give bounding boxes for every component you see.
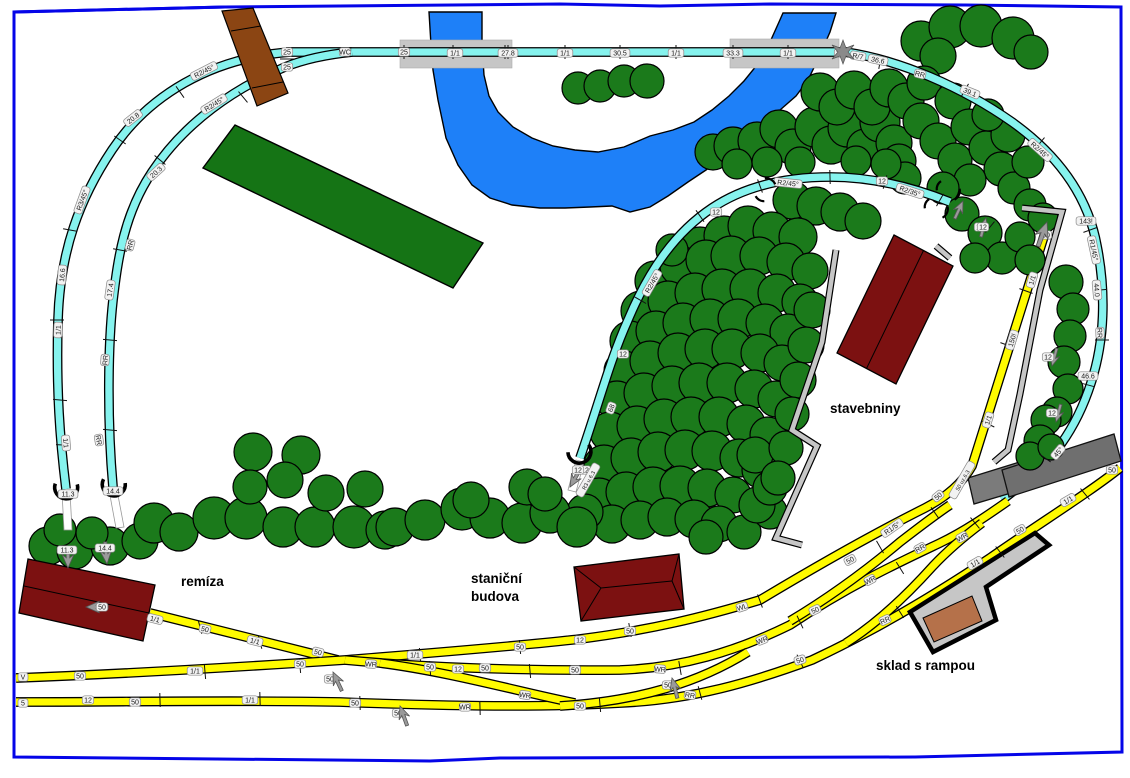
svg-text:50: 50 [516, 645, 524, 652]
svg-text:1/1: 1/1 [410, 653, 420, 660]
svg-text:1/1: 1/1 [61, 438, 69, 448]
svg-text:12: 12 [619, 352, 627, 359]
svg-text:50: 50 [76, 674, 84, 681]
svg-text:50: 50 [571, 668, 579, 675]
svg-text:stavebniny: stavebniny [830, 401, 901, 416]
svg-text:16.6: 16.6 [59, 268, 67, 282]
svg-text:33.3: 33.3 [726, 51, 740, 58]
svg-text:WR: WR [654, 666, 666, 674]
svg-text:sklad s rampou: sklad s rampou [876, 658, 975, 673]
svg-text:remíza: remíza [181, 574, 224, 589]
svg-text:1/1: 1/1 [450, 51, 460, 58]
svg-text:RR: RR [102, 355, 110, 366]
svg-text:12: 12 [1048, 411, 1056, 418]
svg-text:143!: 143! [1079, 219, 1093, 226]
svg-text:budova: budova [471, 589, 519, 604]
svg-text:11.3: 11.3 [60, 548, 73, 555]
svg-text:50: 50 [576, 704, 584, 711]
svg-text:WR: WR [365, 661, 377, 669]
svg-text:12: 12 [1044, 355, 1052, 362]
svg-text:44.0: 44.0 [1092, 283, 1100, 297]
svg-text:50: 50 [626, 629, 634, 636]
svg-text:1/1: 1/1 [55, 325, 62, 335]
svg-text:50: 50 [481, 666, 489, 673]
svg-text:1/1: 1/1 [671, 51, 681, 58]
svg-text:12: 12 [574, 468, 582, 475]
svg-text:50: 50 [351, 701, 359, 708]
svg-text:RR: RR [684, 692, 695, 700]
svg-text:50: 50 [296, 662, 304, 669]
svg-text:1/1: 1/1 [783, 51, 793, 58]
svg-text:30.5: 30.5 [613, 51, 627, 58]
svg-text:46.6: 46.6 [1081, 374, 1095, 381]
svg-text:12: 12 [576, 638, 584, 645]
svg-text:1/1: 1/1 [245, 698, 255, 705]
svg-text:1/1: 1/1 [560, 51, 570, 58]
svg-text:14.4: 14.4 [98, 546, 112, 553]
svg-text:25: 25 [283, 65, 291, 72]
svg-text:50: 50 [426, 665, 434, 672]
svg-text:12: 12 [979, 225, 987, 232]
svg-text:V: V [21, 675, 26, 682]
svg-text:12: 12 [878, 179, 886, 186]
svg-text:staniční: staniční [471, 571, 523, 586]
svg-text:11.3: 11.3 [61, 492, 74, 499]
svg-text:12: 12 [84, 698, 92, 705]
svg-text:25: 25 [400, 50, 408, 57]
svg-text:25: 25 [283, 50, 291, 57]
svg-text:WC: WC [339, 50, 351, 57]
svg-text:WR: WR [459, 705, 471, 712]
svg-text:1/1: 1/1 [190, 669, 200, 676]
svg-text:5: 5 [21, 701, 25, 708]
svg-text:50: 50 [98, 605, 106, 612]
svg-text:50: 50 [131, 700, 139, 707]
svg-text:27.8: 27.8 [501, 51, 515, 58]
svg-text:50: 50 [1108, 468, 1116, 475]
svg-text:12: 12 [454, 667, 462, 674]
svg-text:14.4: 14.4 [106, 489, 120, 496]
svg-text:RR: RR [1095, 328, 1102, 338]
svg-text:12: 12 [712, 210, 720, 217]
